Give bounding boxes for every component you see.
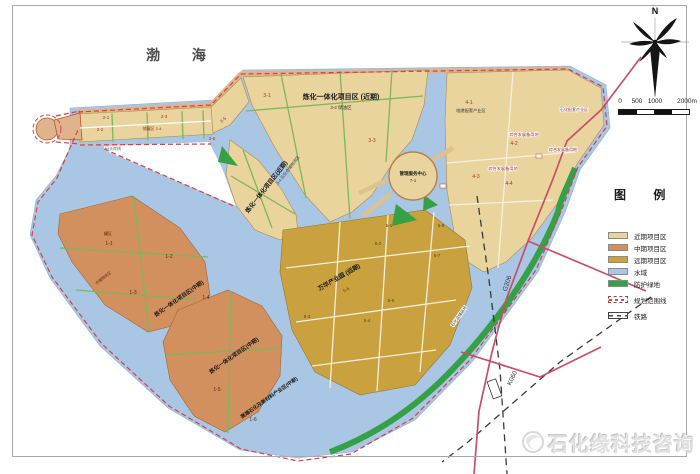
legend-item: 规划范围线 <box>608 295 696 304</box>
legend-item: 远期项目区 <box>608 255 696 264</box>
planning-map-page: 渤 海炼化一体化项目区 (近期)3-2 储油区3-13-3炼化一体化项目区(近期… <box>0 0 700 474</box>
map-label: 储罐区 2-4 <box>143 125 163 131</box>
map-label: 3-1 <box>263 93 270 99</box>
legend-swatch <box>608 256 628 263</box>
map-label: 1-2 <box>165 254 172 260</box>
map-label: 5-3 <box>304 314 311 319</box>
legend-item-label: 铁路 <box>634 311 647 321</box>
map-label: 2-1 <box>103 115 110 120</box>
map-label: 石化配套产业区 <box>560 106 588 112</box>
watermark: 石化缘科技咨询 <box>518 427 695 457</box>
scale-tick: 0 <box>618 98 622 105</box>
compass-rose: N <box>613 4 697 104</box>
map-canvas: 渤 海炼化一体化项目区 (近期)3-2 储油区3-13-3炼化一体化项目区(近期… <box>0 0 700 474</box>
legend-item-label: 水域 <box>634 267 647 277</box>
scale-tick: 500 <box>632 98 643 105</box>
legend-item-label: 近期项目区 <box>634 231 667 241</box>
map-label: 7-1 <box>410 178 417 183</box>
map-label: 5-8 <box>438 223 445 228</box>
map-label: 4-1 <box>465 100 472 106</box>
legend-item: 防护绿地 <box>608 279 696 288</box>
legend-item-label: 远期项目区 <box>634 255 667 265</box>
scale-bar: 050010002000m <box>618 98 692 120</box>
zone-title-near-term: 炼化一体化项目区 (近期) <box>303 92 380 101</box>
map-label: 2-2 <box>97 127 104 132</box>
compass-north-label: N <box>652 6 659 16</box>
legend-item: 中期项目区 <box>608 243 696 252</box>
scale-bar-strip <box>618 109 690 115</box>
legend: 图 例 近期项目区中期项目区远期项目区水域防护绿地规划范围线铁路 <box>608 186 696 323</box>
legend-item: 水域 <box>608 267 696 276</box>
map-label: 1-6 <box>249 417 256 423</box>
legend-item-label: 防护绿地 <box>634 279 660 289</box>
map-label: 5-2 <box>375 241 382 246</box>
map-label: 5-4 <box>364 318 371 323</box>
legend-swatch <box>608 312 628 319</box>
legend-item-label: 规划范围线 <box>634 295 667 305</box>
map-label: 5-5 <box>388 298 395 303</box>
sea-label: 渤 海 <box>146 47 220 63</box>
legend-swatch <box>608 268 628 275</box>
watermark-logo-icon <box>518 427 548 457</box>
map-label: 3-6 <box>209 136 216 141</box>
scale-tick: 2000m <box>677 98 697 105</box>
road-k060 <box>461 347 601 377</box>
map-label: 4-2 <box>510 141 517 147</box>
map-label: 4-4 <box>505 181 512 187</box>
scale-tick-labels: 050010002000m <box>618 98 692 107</box>
map-label: 综合发展备用地 <box>549 146 577 152</box>
map-label: 1-5 <box>213 387 220 393</box>
map-label: 综合发展备用地 <box>509 131 539 138</box>
legend-title: 图 例 <box>614 186 696 203</box>
legend-item: 近期项目区 <box>608 231 696 240</box>
map-label: 综合发展备用地 <box>488 165 518 172</box>
map-label: 3-2 储油区 <box>330 104 352 111</box>
watermark-text: 石化缘科技咨询 <box>548 428 695 457</box>
map-label: 5-1 <box>386 223 393 228</box>
legend-swatch <box>608 244 628 251</box>
map-label: 3-3 <box>368 138 375 144</box>
map-label: 5-7 <box>434 253 441 258</box>
center-island-label: 管理服务中心 <box>400 170 427 177</box>
scale-tick: 1000 <box>648 98 662 105</box>
legend-item-label: 中期项目区 <box>634 243 667 253</box>
railway-station <box>487 379 502 399</box>
map-label: 码头岸线 <box>105 145 121 151</box>
legend-swatch <box>608 296 628 303</box>
map-label: 临港配套产业区 <box>456 107 485 114</box>
road-label-k060: K060 <box>506 370 519 387</box>
legend-swatch <box>608 232 628 239</box>
map-label: 1-3 <box>129 290 136 296</box>
map-label: 1-4 <box>202 295 209 301</box>
map-label: 2-3 <box>161 114 168 119</box>
legend-item: 铁路 <box>608 311 696 320</box>
legend-swatch <box>608 280 628 287</box>
map-label: 罐区 <box>104 230 112 236</box>
map-label: 1-1 <box>105 241 112 247</box>
map-label: 4-3 <box>472 174 479 180</box>
